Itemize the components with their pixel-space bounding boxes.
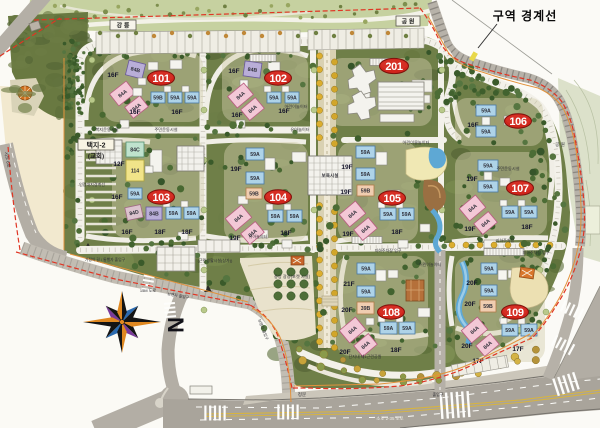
svg-text:19F: 19F xyxy=(464,226,475,233)
svg-text:104: 104 xyxy=(269,192,287,204)
svg-text:공 원: 공 원 xyxy=(402,18,415,26)
svg-text:공 원: 공 원 xyxy=(555,141,565,147)
svg-text:59A: 59A xyxy=(384,326,394,332)
svg-text:16F: 16F xyxy=(171,109,182,116)
svg-text:(교회): (교회) xyxy=(88,151,104,160)
svg-text:구역 경계선: 구역 경계선 xyxy=(493,8,558,23)
svg-text:59A: 59A xyxy=(483,184,493,190)
svg-text:59A: 59A xyxy=(271,214,281,220)
svg-text:N: N xyxy=(163,317,188,333)
svg-text:거정이 길 / 통행자 출입구: 거정이 길 / 통행자 출입구 xyxy=(85,257,126,262)
svg-text:59A: 59A xyxy=(290,214,300,220)
svg-text:59A: 59A xyxy=(130,191,140,197)
svg-text:59B: 59B xyxy=(249,191,259,197)
svg-text:16F: 16F xyxy=(231,112,242,119)
svg-text:59A: 59A xyxy=(481,108,491,114)
svg-text:59A: 59A xyxy=(402,326,412,332)
svg-text:59A: 59A xyxy=(481,129,491,135)
svg-text:59A: 59A xyxy=(402,212,412,218)
svg-text:59A: 59A xyxy=(250,176,260,182)
svg-text:59A: 59A xyxy=(505,328,515,334)
svg-text:인접대지경계선: 인접대지경계선 xyxy=(79,181,105,187)
svg-text:59A: 59A xyxy=(505,210,515,216)
svg-text:59B: 59B xyxy=(153,95,163,101)
svg-text:16F: 16F xyxy=(111,194,122,201)
svg-text:단지내 제1근린공원: 단지내 제1근린공원 xyxy=(349,353,382,359)
svg-text:16F: 16F xyxy=(228,68,239,75)
svg-text:소로 2-35 도로: 소로 2-35 도로 xyxy=(376,416,403,421)
svg-text:17F: 17F xyxy=(512,346,523,353)
svg-text:15M 도로: 15M 도로 xyxy=(140,288,157,293)
svg-text:(근린생활시설(상가)): (근린생활시설(상가)) xyxy=(198,257,233,263)
svg-text:복지운동시설: 복지운동시설 xyxy=(95,126,118,133)
svg-text:출입구: 출입구 xyxy=(432,391,443,397)
svg-text:39B: 39B xyxy=(361,306,371,312)
svg-text:12F: 12F xyxy=(113,161,124,168)
svg-text:21F: 21F xyxy=(343,281,354,288)
svg-text:어린이놀이터: 어린이놀이터 xyxy=(419,261,441,267)
svg-text:59A: 59A xyxy=(187,211,197,217)
svg-text:59A: 59A xyxy=(361,172,371,178)
svg-text:주민운동시설: 주민운동시설 xyxy=(154,126,177,133)
svg-text:강 릉: 강 릉 xyxy=(117,22,130,30)
svg-text:59B: 59B xyxy=(361,188,371,194)
svg-text:유아놀이터: 유아놀이터 xyxy=(290,126,309,133)
svg-text:지하주차장 입구: 지하주차장 입구 xyxy=(375,247,402,253)
svg-text:105: 105 xyxy=(383,193,400,205)
svg-text:16F: 16F xyxy=(278,108,289,115)
svg-text:18F: 18F xyxy=(521,224,532,231)
svg-text:16F: 16F xyxy=(121,229,132,236)
svg-text:59A: 59A xyxy=(524,210,534,216)
svg-text:지하주차장: 지하주차장 xyxy=(496,237,515,243)
svg-text:59A: 59A xyxy=(524,328,534,334)
svg-text:18F: 18F xyxy=(154,229,165,236)
svg-text:18F: 18F xyxy=(390,347,401,354)
svg-text:59A: 59A xyxy=(250,152,260,158)
svg-text:59A: 59A xyxy=(361,150,371,156)
svg-text:16F: 16F xyxy=(129,109,140,116)
svg-text:59A: 59A xyxy=(483,163,493,169)
svg-text:어린이놀이터: 어린이놀이터 xyxy=(284,103,307,110)
svg-text:59B: 59B xyxy=(483,304,493,310)
svg-text:20F: 20F xyxy=(461,343,472,350)
svg-text:103: 103 xyxy=(152,192,169,204)
svg-text:주민운동시설: 주민운동시설 xyxy=(496,165,519,172)
svg-text:어린이물놀이터: 어린이물놀이터 xyxy=(403,139,430,146)
svg-text:택지-2: 택지-2 xyxy=(86,141,105,150)
svg-text:19F: 19F xyxy=(341,164,352,171)
svg-text:59A: 59A xyxy=(170,95,180,101)
svg-text:59A: 59A xyxy=(169,211,179,217)
svg-text:107: 107 xyxy=(511,183,528,195)
svg-text:59A: 59A xyxy=(484,288,494,294)
svg-text:보육시설: 보육시설 xyxy=(322,172,339,179)
svg-text:20F: 20F xyxy=(341,307,352,314)
svg-text:59A: 59A xyxy=(361,266,371,272)
svg-text:19F: 19F xyxy=(340,189,351,196)
svg-text:59A: 59A xyxy=(361,289,371,295)
svg-text:84B: 84B xyxy=(149,211,159,217)
svg-text:중앙 광장(포켓 시설): 중앙 광장(포켓 시설) xyxy=(274,273,311,280)
svg-text:201: 201 xyxy=(385,61,402,73)
svg-text:16F: 16F xyxy=(107,72,118,79)
svg-text:유아놀이터: 유아놀이터 xyxy=(249,233,268,239)
svg-text:84C: 84C xyxy=(130,147,140,153)
svg-text:19F: 19F xyxy=(229,235,240,242)
svg-text:지하주차장 입구: 지하주차장 입구 xyxy=(523,249,550,255)
svg-text:102: 102 xyxy=(269,73,286,85)
svg-text:20F: 20F xyxy=(466,280,477,287)
svg-text:20F: 20F xyxy=(464,301,475,308)
svg-text:19F: 19F xyxy=(230,166,241,173)
svg-text:59A: 59A xyxy=(484,266,494,272)
svg-text:59A: 59A xyxy=(187,95,197,101)
svg-text:109: 109 xyxy=(506,307,523,319)
svg-text:59A: 59A xyxy=(269,95,279,101)
svg-text:106: 106 xyxy=(509,116,526,128)
svg-text:19F: 19F xyxy=(466,176,477,183)
svg-text:101: 101 xyxy=(152,73,169,85)
svg-text:19F: 19F xyxy=(342,231,353,238)
svg-text:59A: 59A xyxy=(287,95,297,101)
svg-text:18F: 18F xyxy=(280,230,291,237)
svg-text:114: 114 xyxy=(131,168,139,174)
svg-text:18F: 18F xyxy=(181,229,192,236)
svg-text:108: 108 xyxy=(382,307,399,319)
svg-text:59A: 59A xyxy=(383,212,393,218)
svg-text:18F: 18F xyxy=(391,229,402,236)
svg-text:정문: 정문 xyxy=(298,391,306,397)
